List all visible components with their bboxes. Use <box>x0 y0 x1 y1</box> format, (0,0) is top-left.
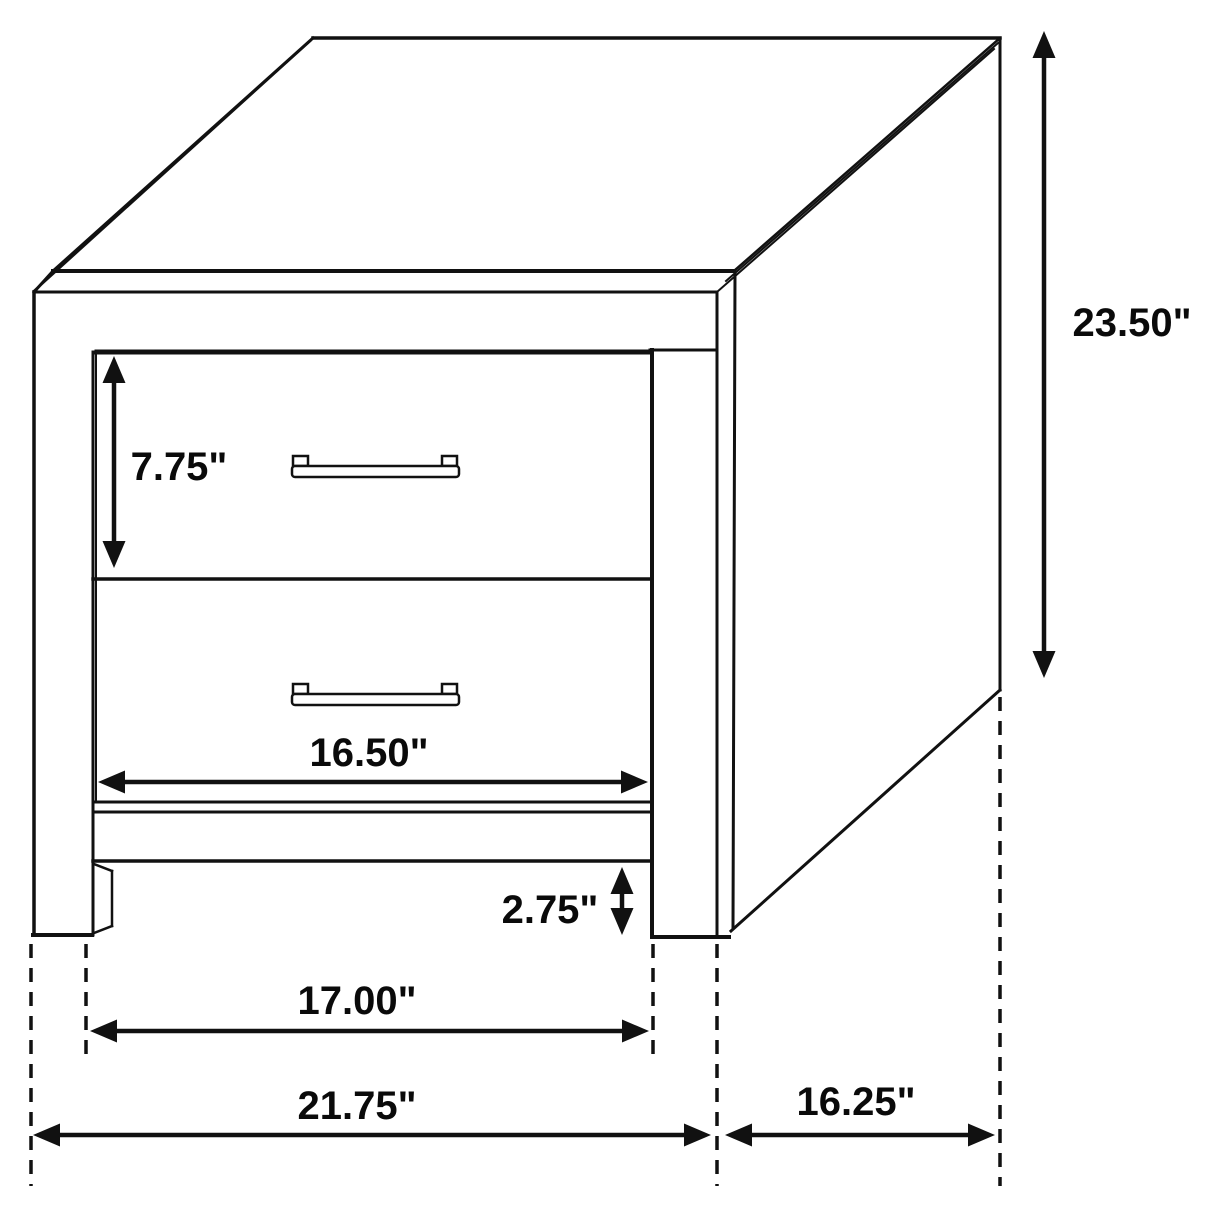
arrow-base-height-head-start <box>611 867 634 894</box>
arrow-depth-head-end <box>968 1124 995 1147</box>
side-front-edge <box>733 272 735 928</box>
drawer2-handle-right-tab <box>442 684 457 694</box>
drawer2-handle-bar <box>292 694 459 705</box>
top-left-edge-inner <box>53 38 313 271</box>
arrow-leg-span-head-start <box>90 1020 117 1043</box>
arrow-overall-height-head-start <box>1033 31 1056 58</box>
arrow-drawer-width-head-start <box>98 771 125 794</box>
arrow-leg-span-head-end <box>622 1020 649 1043</box>
arrow-overall-height-head-end <box>1033 651 1056 678</box>
arrow-drawer-height-head-start <box>103 356 126 383</box>
top-right-edge-line3 <box>717 49 994 292</box>
left-leg-depth-top <box>94 864 112 871</box>
nightstand-drawing-canvas: 7.75"23.50"16.50"2.75"17.00"21.75"16.25" <box>0 0 1214 1214</box>
drawer2-handle-left-tab <box>293 684 308 694</box>
drawer1-handle-bar <box>292 466 459 477</box>
drawer1-handle-left-tab <box>293 456 308 466</box>
arrow-drawer-width-head-end <box>621 771 648 794</box>
left-leg-depth-foot <box>94 926 112 933</box>
top-right-edge-line2 <box>726 43 998 281</box>
arrow-overall-width-head-end <box>684 1124 711 1147</box>
furniture-dimension-diagram: 7.75"23.50"16.50"2.75"17.00"21.75"16.25" <box>0 0 1214 1214</box>
top-right-edge-line1 <box>734 38 1000 271</box>
dim-label-overall-height: 23.50" <box>1072 301 1191 345</box>
arrow-overall-width-head-start <box>33 1124 60 1147</box>
dim-label-base-height: 2.75" <box>502 888 599 932</box>
dim-label-drawer-width: 16.50" <box>309 731 428 775</box>
dim-label-depth: 16.25" <box>796 1080 915 1124</box>
dim-label-drawer-height: 7.75" <box>131 445 228 489</box>
drawer1-handle-right-tab <box>442 456 457 466</box>
dim-label-leg-span: 17.00" <box>297 979 416 1023</box>
arrow-base-height-head-end <box>611 908 634 935</box>
side-bottom-edge <box>731 690 1000 931</box>
arrow-depth-head-start <box>725 1124 752 1147</box>
arrow-drawer-height-head-end <box>103 541 126 568</box>
dim-label-overall-width: 21.75" <box>297 1084 416 1128</box>
